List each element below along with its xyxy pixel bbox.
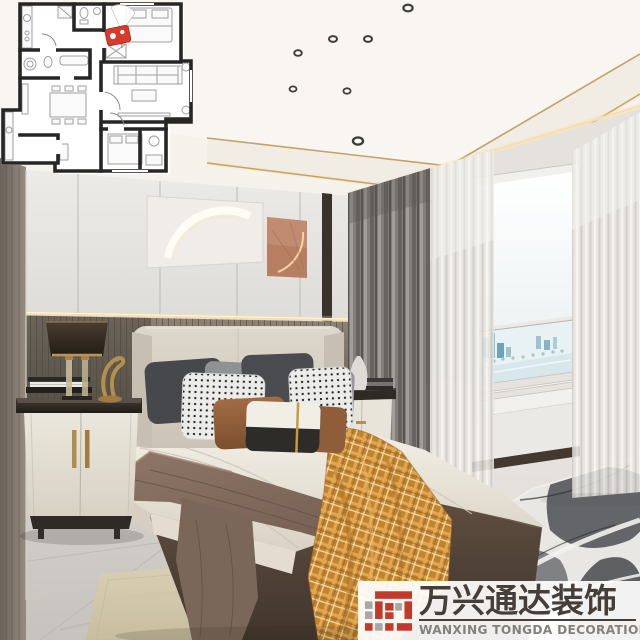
- watermark: 万兴通达装饰 WANXING TONGDA DECORATION: [358, 581, 640, 640]
- floor-plan: [0, 0, 198, 180]
- brand-name-en: WANXING TONGDA DECORATION: [419, 623, 636, 637]
- pillow-white-gold: [245, 401, 321, 454]
- sheer-curtain-right: [572, 112, 640, 498]
- brand-divider: [419, 619, 636, 622]
- artwork-copper: [267, 217, 307, 278]
- drawer-handle: [356, 421, 366, 424]
- artwork-white: [147, 196, 263, 268]
- brand-text: 万兴通达装饰 WANXING TONGDA DECORATION: [419, 584, 636, 637]
- books-stack-right: [366, 378, 393, 390]
- logo-mark-icon: [365, 591, 412, 631]
- wall-inlay-strip: [322, 193, 332, 322]
- brand-name-cn: 万兴通达装饰: [419, 584, 636, 618]
- bedroom-render: 万兴通达装饰 WANXING TONGDA DECORATION: [0, 0, 640, 640]
